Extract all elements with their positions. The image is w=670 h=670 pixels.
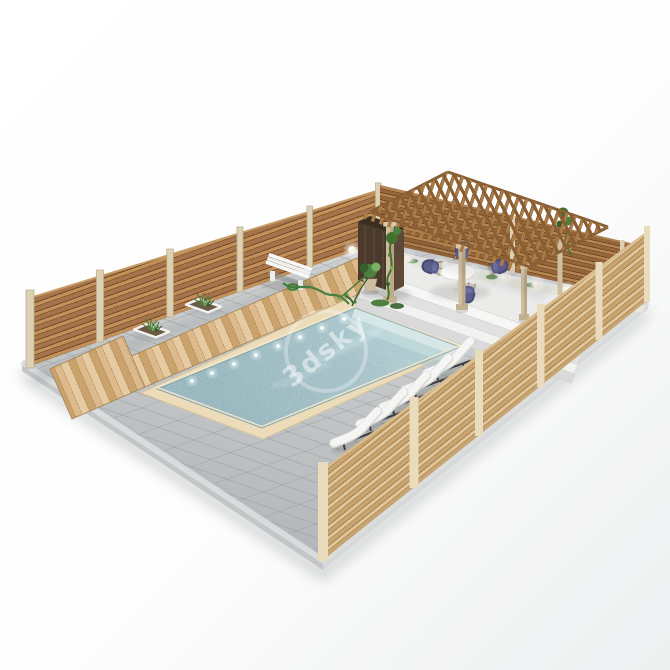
fence-post xyxy=(596,262,603,340)
fence-post xyxy=(26,290,34,368)
underwater-light xyxy=(230,360,239,369)
bench-leg xyxy=(270,271,275,281)
fence-post xyxy=(237,227,243,292)
fence-post xyxy=(410,397,419,488)
fence-post-corner xyxy=(644,226,650,302)
sphere-lamp xyxy=(345,243,359,257)
fence-post-corner xyxy=(318,462,328,561)
underwater-light xyxy=(296,333,305,342)
underwater-light xyxy=(274,342,283,351)
fence-post xyxy=(537,304,545,387)
render-canvas: 3dsky xyxy=(0,0,670,670)
underwater-light xyxy=(188,377,197,386)
underwater-light xyxy=(252,351,261,360)
fence-post xyxy=(307,206,313,267)
bench-leg xyxy=(298,280,303,290)
scene-render: 3dsky xyxy=(0,0,670,670)
fence-post xyxy=(167,249,174,317)
underwater-light xyxy=(208,369,217,378)
fence-post xyxy=(475,350,483,436)
fence-post xyxy=(97,270,104,342)
